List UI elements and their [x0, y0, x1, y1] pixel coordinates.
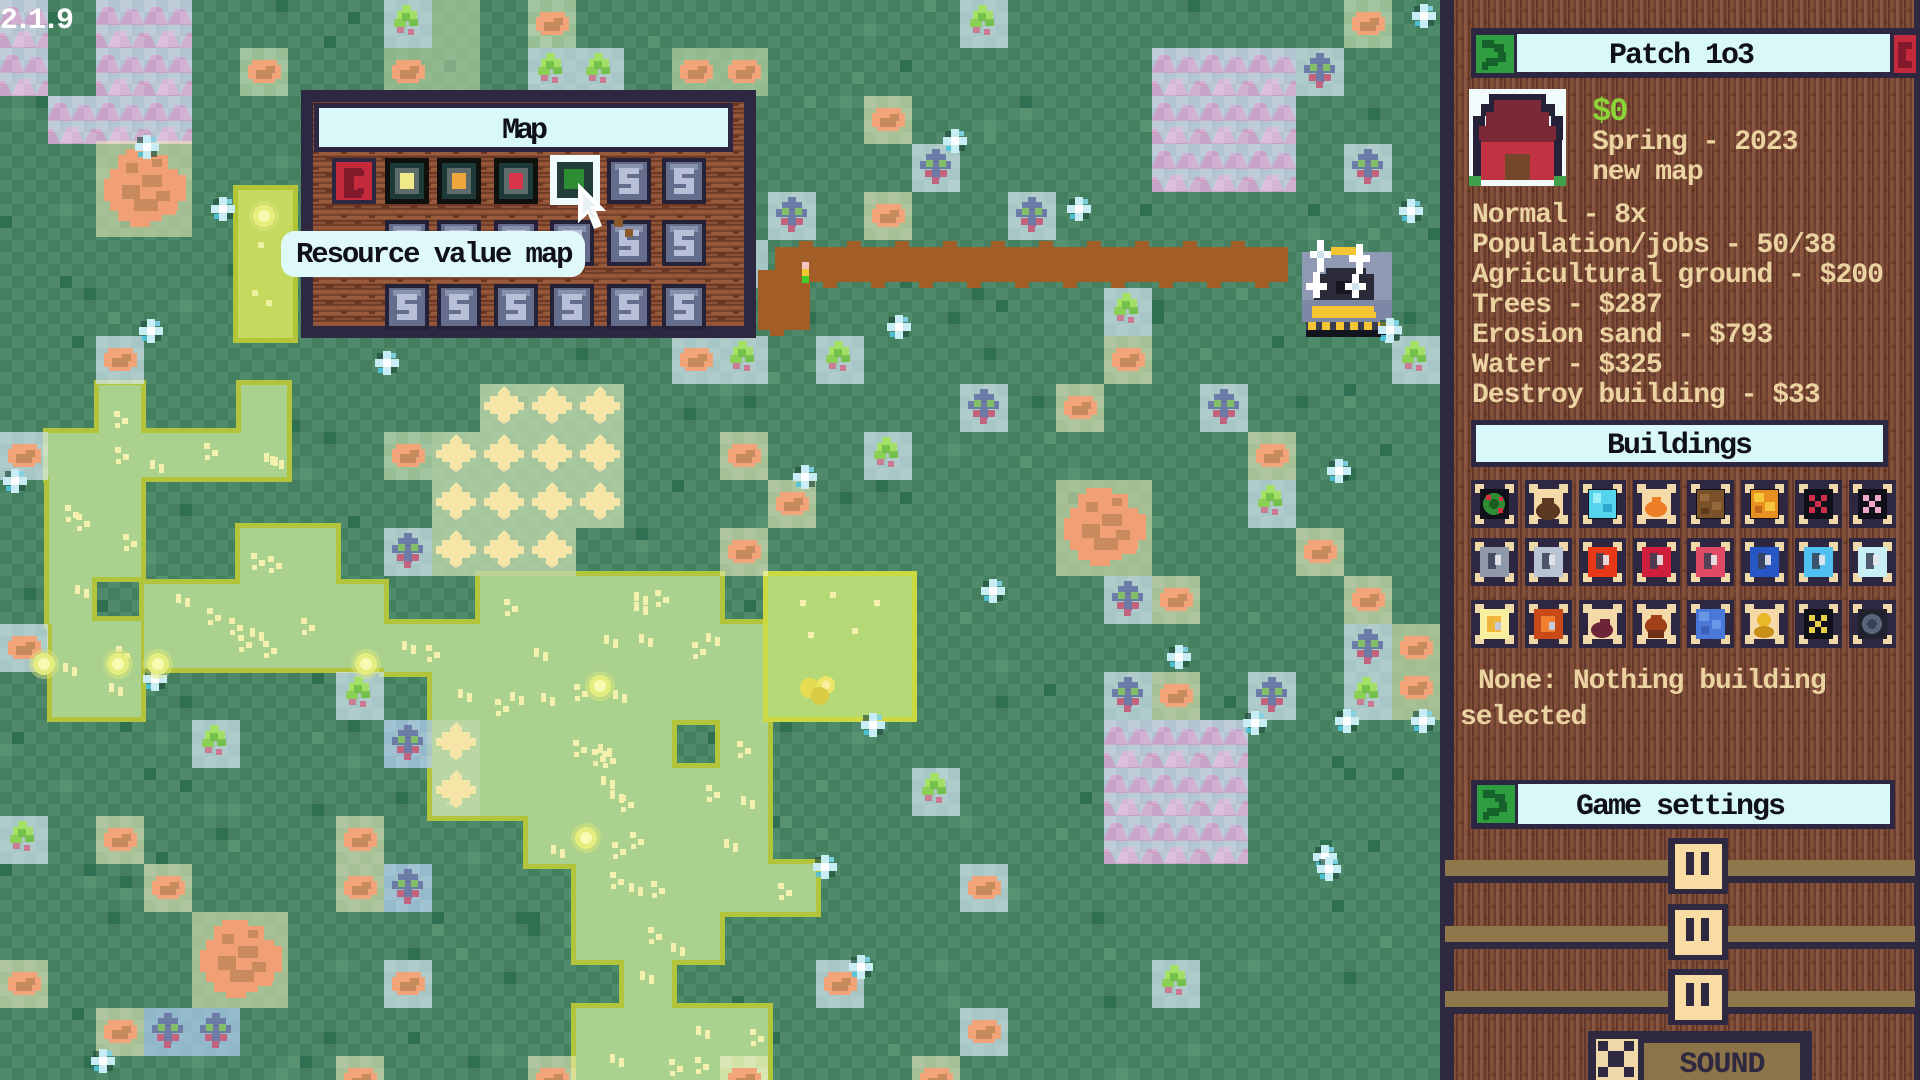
svg-text:Erosion sand - $793: Erosion sand - $793 — [1472, 320, 1772, 351]
svg-text:Water - $325: Water - $325 — [1472, 350, 1662, 381]
svg-text:Patch 1o3: Patch 1o3 — [1609, 39, 1754, 73]
svg-text:Population/jobs - 50/38: Population/jobs - 50/38 — [1472, 230, 1836, 261]
svg-text:Game settings: Game settings — [1576, 790, 1785, 824]
svg-text:SOUND: SOUND — [1679, 1048, 1764, 1080]
svg-text:new map: new map — [1592, 157, 1703, 188]
svg-text:None: Nothing building: None: Nothing building — [1478, 666, 1826, 697]
svg-text:Agricultural ground - $200: Agricultural ground - $200 — [1472, 260, 1883, 291]
svg-text:selected: selected — [1460, 702, 1586, 733]
svg-text:Destroy building - $33: Destroy building - $33 — [1472, 380, 1820, 411]
svg-text:Spring - 2023: Spring - 2023 — [1592, 127, 1798, 158]
svg-text:Map: Map — [502, 114, 547, 148]
svg-text:$0: $0 — [1592, 93, 1627, 130]
svg-text:Normal - 8x: Normal - 8x — [1472, 200, 1647, 231]
svg-text:Trees - $287: Trees - $287 — [1472, 290, 1662, 321]
svg-text:Resource value map: Resource value map — [296, 238, 573, 271]
svg-text:Buildings: Buildings — [1607, 429, 1752, 463]
svg-text:2.1.9: 2.1.9 — [0, 4, 73, 38]
